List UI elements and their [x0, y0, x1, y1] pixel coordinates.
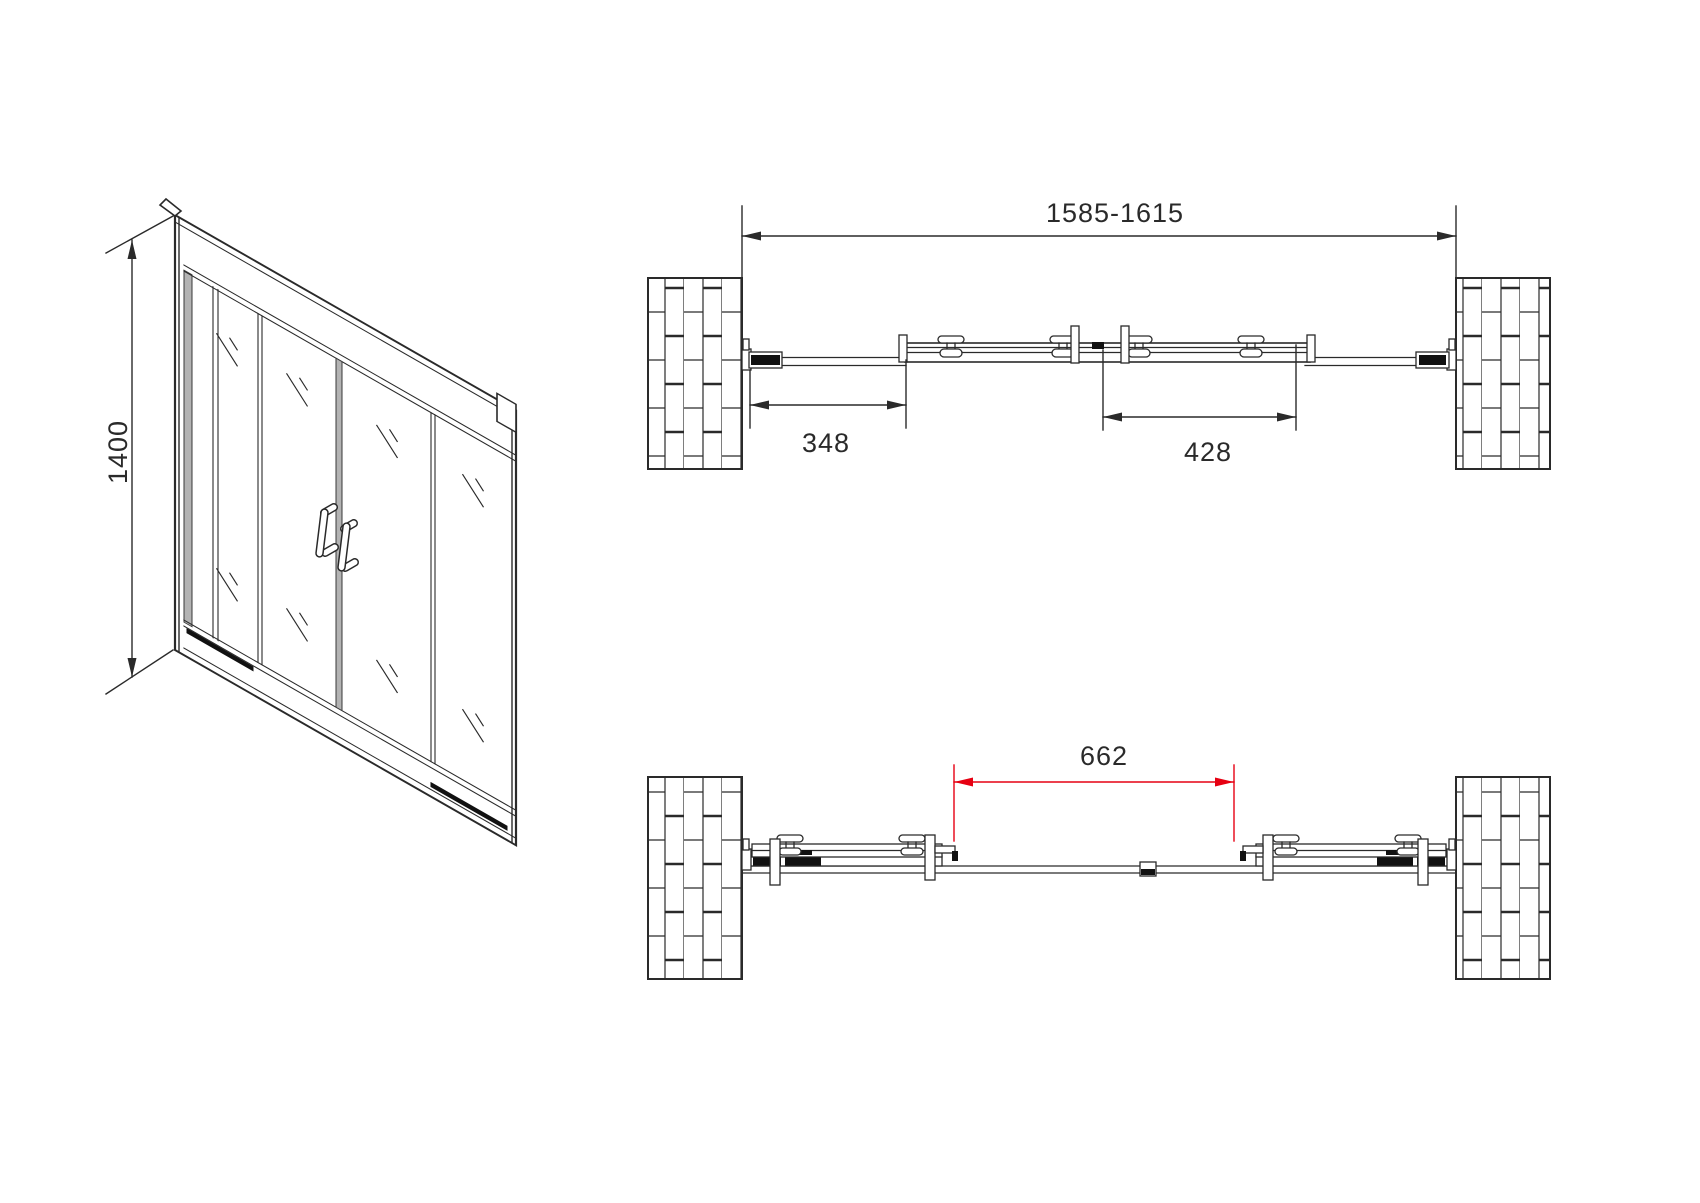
center-handle-tab: [1121, 326, 1129, 363]
right-opening-dimension: 428: [1103, 345, 1296, 467]
handle-tab-left: [925, 835, 935, 880]
wall-left-open: [648, 777, 742, 979]
door-track-closed: [742, 326, 1456, 370]
wall-bracket-left-open: [742, 849, 751, 870]
frame-top-cap: [160, 199, 181, 216]
shower-door-technical-drawing: 1400: [0, 0, 1700, 1203]
wall-left-closed: [648, 278, 742, 469]
center-handle-tab: [1071, 326, 1079, 363]
right-opening-label: 428: [1184, 437, 1232, 467]
wall-right-closed: [1456, 278, 1550, 469]
drawing-canvas: 1400: [0, 0, 1700, 1203]
handle-tab-right: [1263, 835, 1273, 880]
door-handle-right: [338, 518, 360, 572]
left-opening-label: 348: [802, 428, 850, 458]
slide-opening-label: 662: [1080, 741, 1128, 771]
overall-width-label: 1585-1615: [1046, 198, 1184, 228]
wall-bracket-right-open: [1447, 849, 1456, 870]
glass-marks: [217, 331, 483, 741]
height-dimension: 1400: [103, 215, 175, 694]
wall-profile-bar: [184, 270, 192, 627]
stacked-panels-left: [742, 835, 958, 885]
slide-opening-dimension: 662: [954, 741, 1234, 841]
panel-edge-tab: [1418, 839, 1428, 885]
panel-edge-tab: [770, 839, 780, 885]
overall-width-dimension: 1585-1615: [742, 198, 1456, 350]
height-dimension-label: 1400: [103, 420, 133, 484]
plan-view-open: 662: [648, 741, 1550, 979]
stacked-panels-right: [1240, 835, 1456, 885]
isometric-view: 1400: [103, 199, 516, 845]
wall-right-open: [1456, 777, 1550, 979]
center-mullion: [336, 358, 342, 710]
plan-view-closed: 1585-1615: [648, 198, 1550, 469]
left-opening-dimension: 348: [750, 360, 906, 458]
